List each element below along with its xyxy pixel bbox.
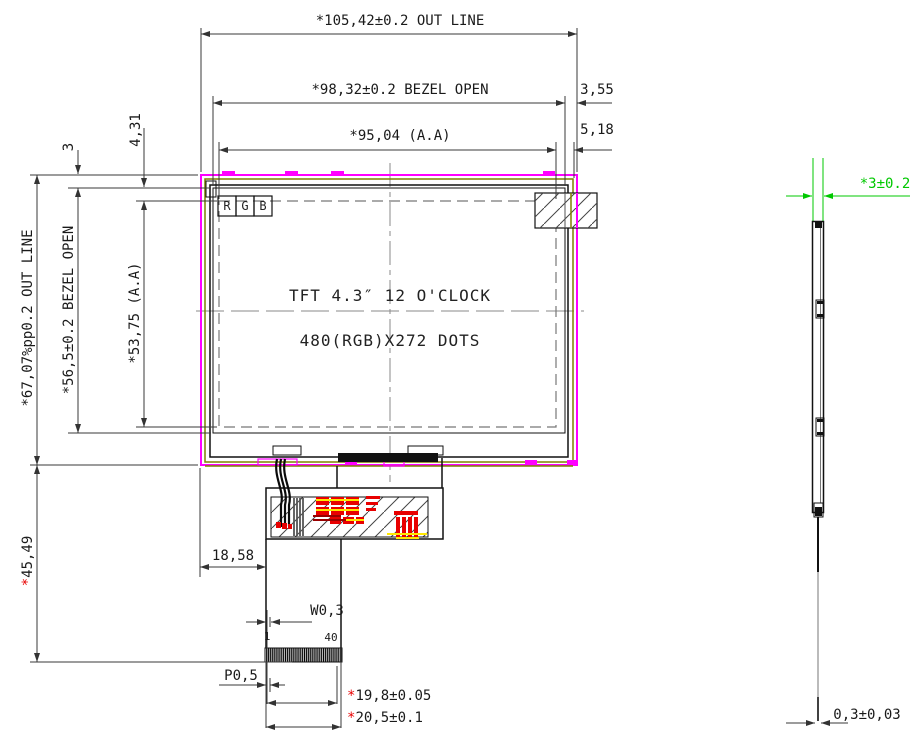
dim-top-margin-aa: 4,31 xyxy=(129,113,143,147)
hatched-corner-box xyxy=(535,193,597,228)
dim-top-margin-bezel: 3 xyxy=(62,143,76,151)
pin-number-first: 1 xyxy=(264,631,271,642)
glass-ledge-contact-bar xyxy=(338,453,438,462)
panel-description-line1: TFT 4.3″ 12 O'CLOCK xyxy=(289,288,491,304)
dim-active-area-height: *53,75 (A.A) xyxy=(128,262,142,363)
dim-fpc-thickness: 0,3±0,03 xyxy=(833,708,900,722)
dim-bezel-open-width: *98,32±0.2 BEZEL OPEN xyxy=(311,83,488,97)
rgb-mark-g: G xyxy=(241,200,248,212)
dim-connector-width-outer: *20,5±0.1 xyxy=(347,711,423,725)
fpc-connector-pins xyxy=(265,648,342,662)
dim-connector-width-inner: *19,8±0.05 xyxy=(347,689,431,703)
dim-pin-width: W0,3 xyxy=(310,604,344,618)
pin-number-last: 40 xyxy=(324,632,337,643)
rgb-mark-r: R xyxy=(223,200,230,212)
dim-module-thickness: *3±0.2 xyxy=(860,177,911,191)
dim-active-area-width: *95,04 (A.A) xyxy=(349,129,450,143)
dim-outline-width: *105,42±0.2 OUT LINE xyxy=(316,14,485,28)
panel-description-line2: 480(RGB)X272 DOTS xyxy=(300,333,481,349)
dim-bezel-open-height: *56,5±0.2 BEZEL OPEN xyxy=(62,226,76,395)
gasket-tabs xyxy=(222,171,576,466)
rgb-mark-b: B xyxy=(259,200,266,212)
front-view-panel xyxy=(201,171,597,466)
fpc-assembly xyxy=(265,458,443,662)
dim-outline-height: *67,07%pp0.2 OUT LINE xyxy=(21,229,35,406)
red-asterisk: * xyxy=(20,578,36,586)
dim-fpc-length: *45,49 xyxy=(21,536,35,587)
dim-right-margin-bezel: 3,55 xyxy=(580,83,614,97)
drawing-sheet: *105,42±0.2 OUT LINE *98,32±0.2 BEZEL OP… xyxy=(0,0,920,752)
dim-pin-pitch: P0,5 xyxy=(224,669,258,683)
active-area-border xyxy=(219,201,556,427)
dim-right-margin-aa: 5,18 xyxy=(580,123,614,137)
side-view xyxy=(786,158,910,723)
dim-fpc-offset: 18,58 xyxy=(212,549,254,563)
